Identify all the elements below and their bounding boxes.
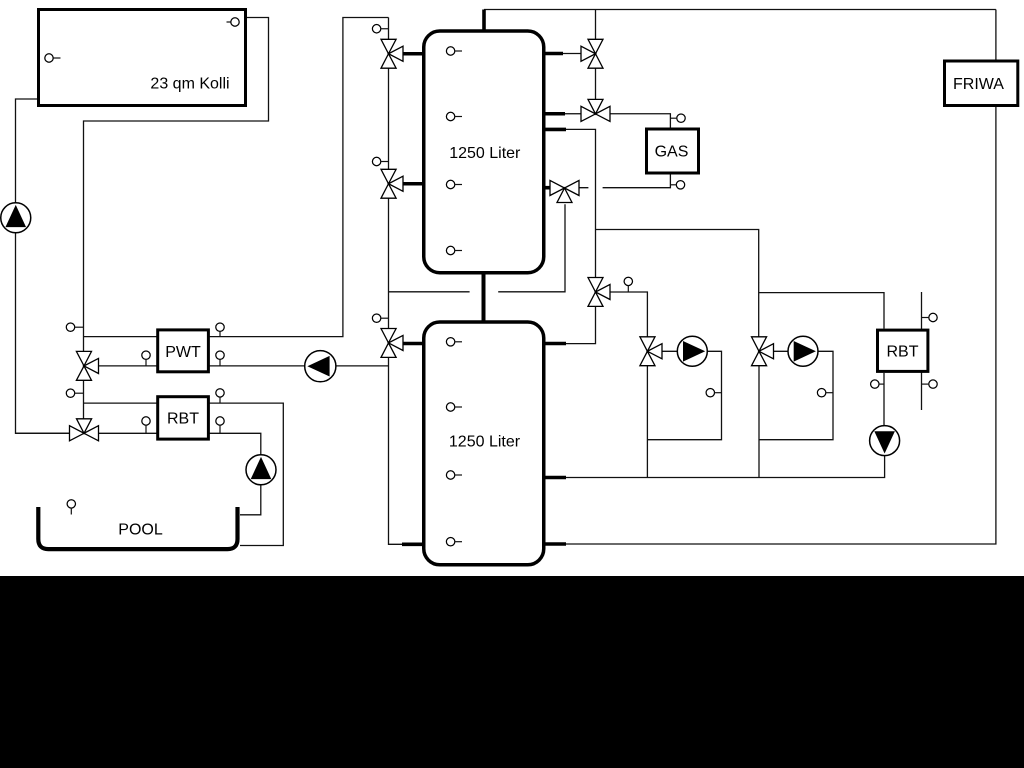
svg-text:FRIWA: FRIWA bbox=[953, 76, 1004, 93]
svg-text:23 qm Kolli: 23 qm Kolli bbox=[150, 76, 229, 93]
svg-text:PWT: PWT bbox=[165, 344, 201, 361]
svg-text:1250 Liter: 1250 Liter bbox=[449, 145, 521, 162]
svg-text:RBT: RBT bbox=[167, 411, 199, 428]
svg-text:RBT: RBT bbox=[887, 344, 919, 361]
svg-text:POOL: POOL bbox=[118, 522, 163, 539]
svg-text:1250 Liter: 1250 Liter bbox=[449, 434, 521, 451]
svg-text:GAS: GAS bbox=[655, 143, 689, 160]
